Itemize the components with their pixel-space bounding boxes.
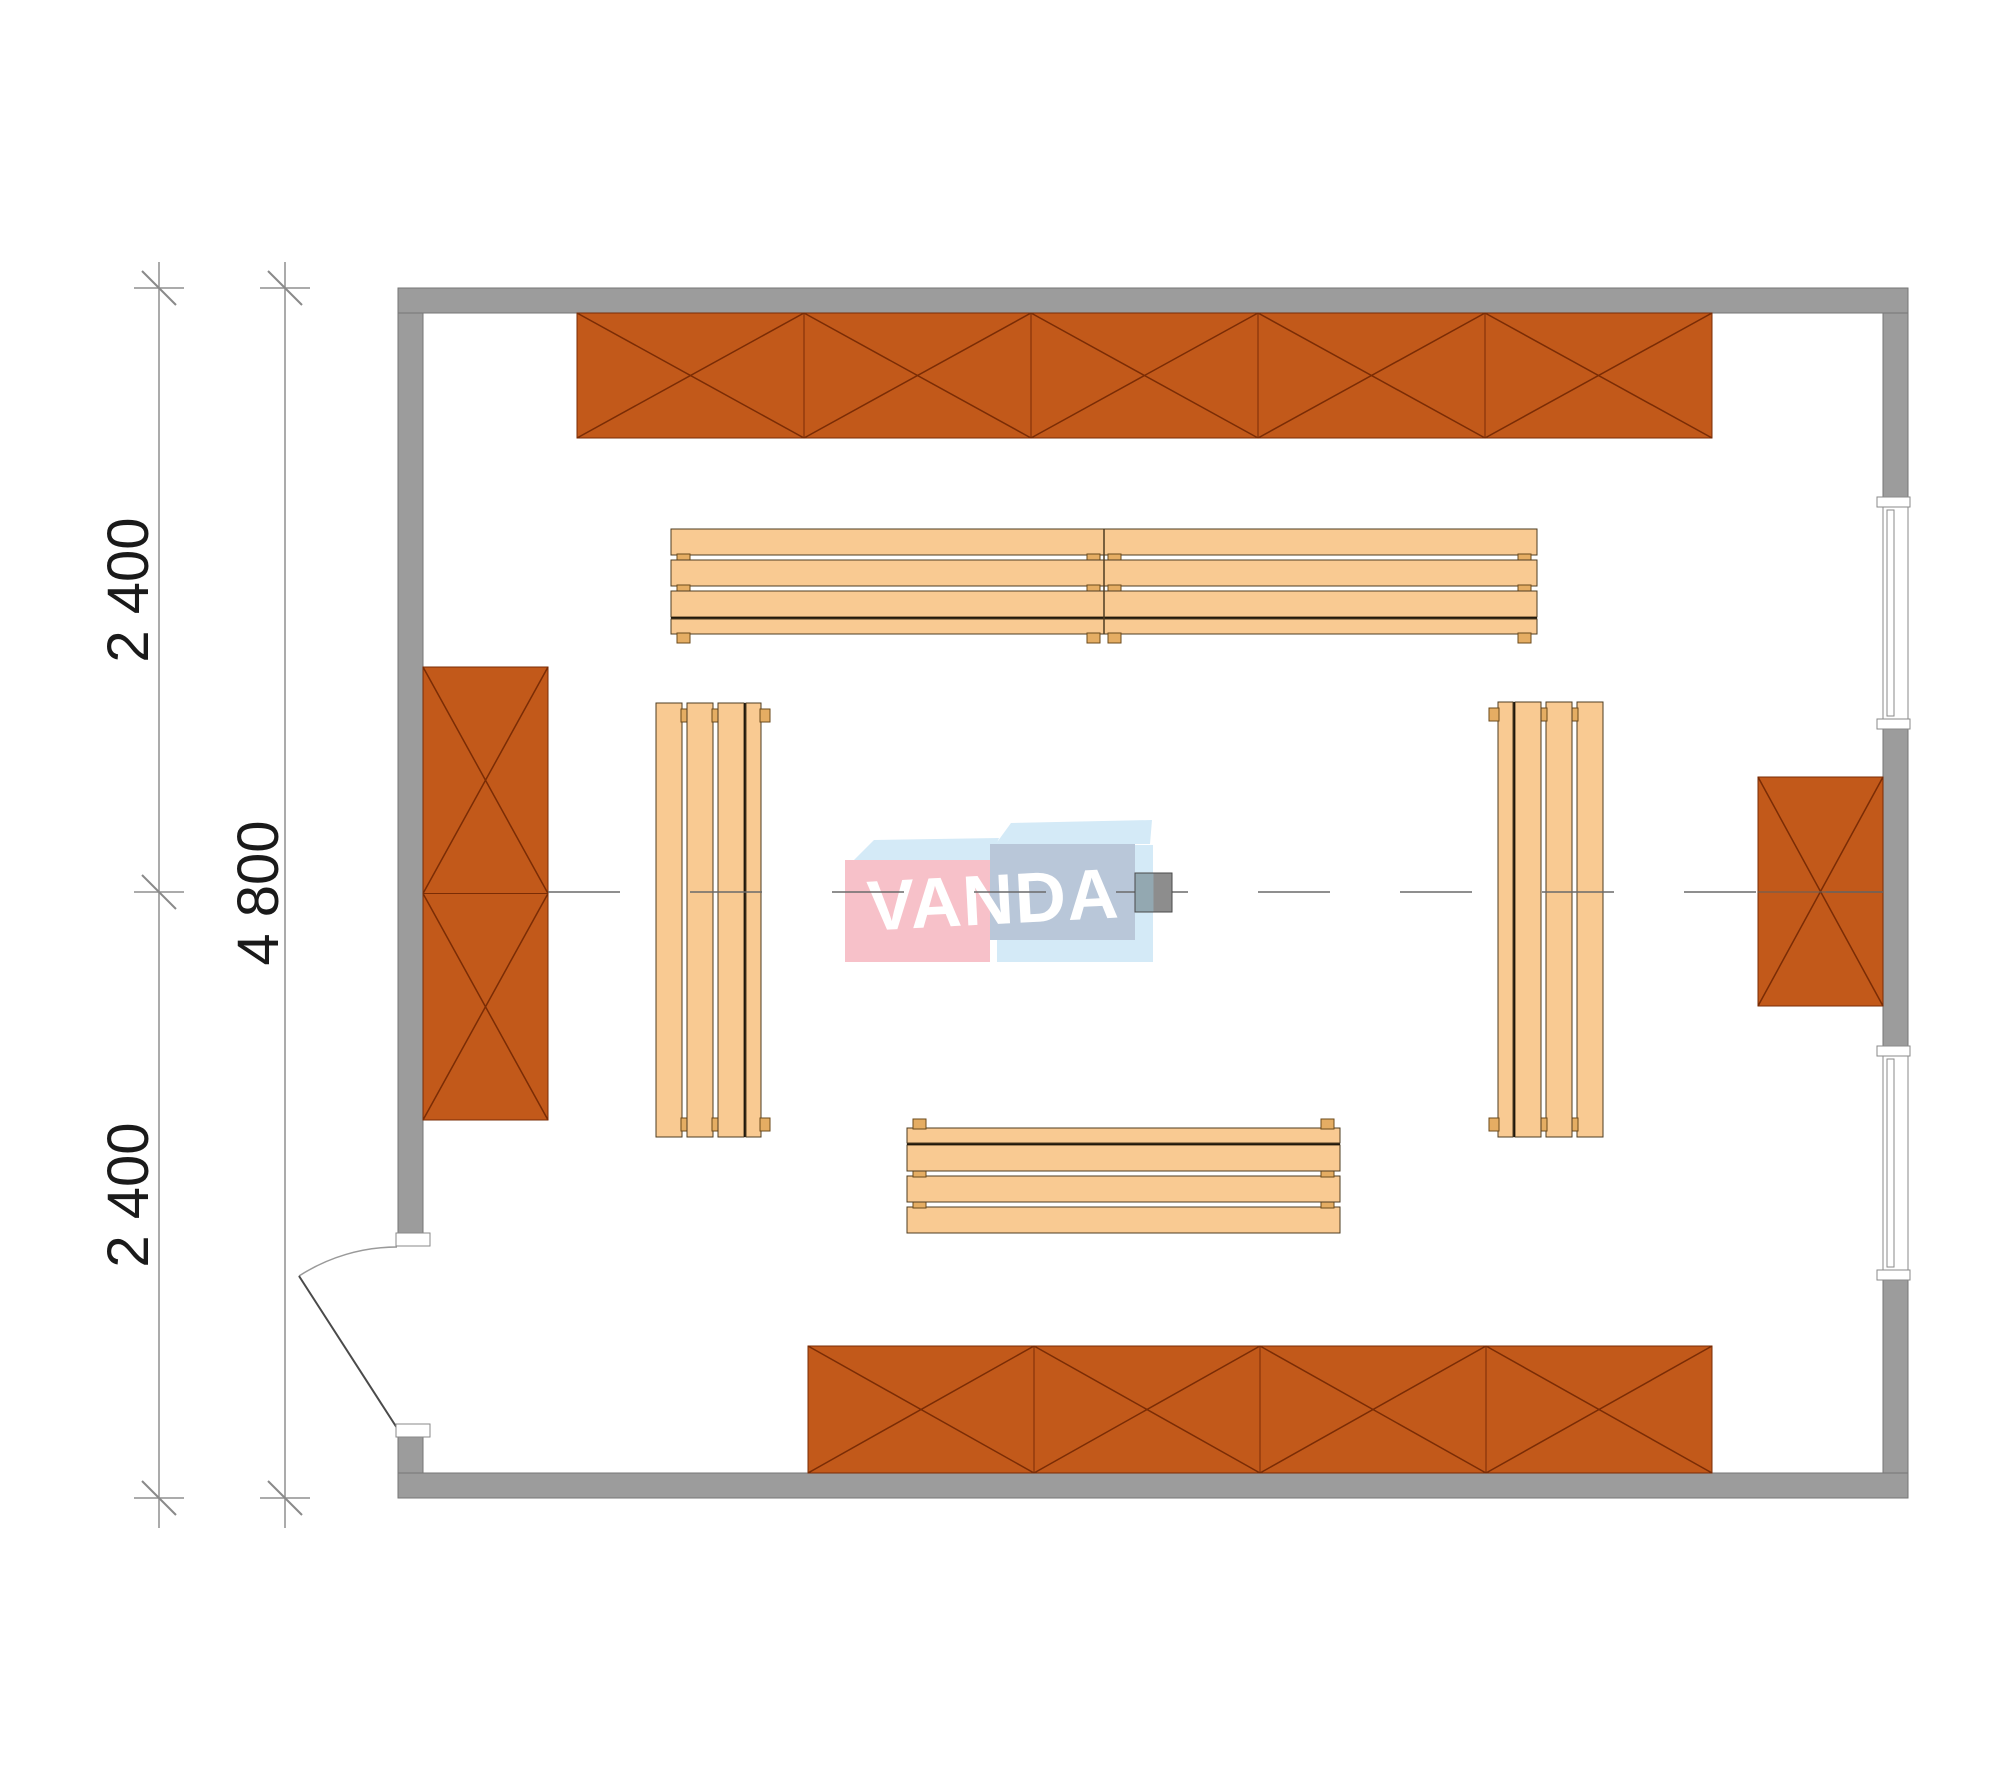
bench-leg [760, 1118, 770, 1131]
door-leaf [299, 1276, 397, 1428]
wall-right-upper [1883, 313, 1908, 500]
wall-right-mid [1883, 726, 1908, 1049]
bench-slat [687, 703, 713, 1137]
wall-top [398, 288, 1908, 313]
window-glazing [1887, 1059, 1894, 1267]
bench-slat [907, 1207, 1340, 1233]
bench-leg [1489, 1118, 1499, 1131]
bench-slat [907, 1128, 1340, 1143]
bench-leg [1321, 1119, 1334, 1129]
bench-slat [907, 1145, 1340, 1171]
bench-leg [677, 633, 690, 643]
stove-right-half [1154, 873, 1173, 912]
dimension-label-top-2400: 2 400 [96, 517, 161, 662]
bench-slat [1546, 702, 1572, 1137]
wall-bottom [398, 1473, 1908, 1498]
window-jamb-bottom [1877, 719, 1910, 729]
stove-left-half [1135, 873, 1154, 912]
window-right-upper [1877, 497, 1910, 729]
bench-slat [656, 703, 682, 1137]
bench-right [1489, 702, 1603, 1137]
bench-bottom [907, 1119, 1340, 1233]
wall-right-lower [1883, 1277, 1908, 1473]
watermark-flap-right [995, 820, 1152, 845]
cabinet-left-wall [423, 667, 548, 1120]
floor-plan-canvas: VANDA 2 400 2 400 4 800 [0, 0, 2000, 1786]
watermark-flap-left [853, 838, 999, 861]
bench-slat [1577, 702, 1603, 1137]
bench-slat [907, 1176, 1340, 1202]
door [299, 1233, 430, 1437]
bench-slat [1498, 702, 1513, 1137]
bench-leg [1489, 708, 1499, 721]
wall-left-upper [398, 313, 423, 1233]
window-jamb-bottom [1877, 1270, 1910, 1280]
bench-leg [1087, 633, 1100, 643]
bench-slat [746, 703, 761, 1137]
bench-leg [913, 1119, 926, 1129]
bench-slat [718, 703, 744, 1137]
bench-left [656, 703, 770, 1137]
window-jamb-top [1877, 497, 1910, 507]
door-jamb-top [396, 1233, 430, 1246]
door-jamb-bottom [396, 1424, 430, 1437]
cabinet-row-top [577, 313, 1712, 438]
bench-leg [1108, 633, 1121, 643]
window-right-lower [1877, 1046, 1910, 1280]
window-glazing [1887, 510, 1894, 716]
stove [1135, 873, 1172, 912]
bench-slat [1515, 702, 1541, 1137]
dimension-label-total-4800: 4 800 [226, 820, 291, 965]
bench-leg [760, 709, 770, 722]
wall-left-lower [398, 1437, 423, 1473]
watermark-logo-text: VANDA [865, 854, 1121, 946]
cabinet-row-bottom [808, 1346, 1712, 1473]
bench-leg [1518, 633, 1531, 643]
dimension-label-bottom-2400: 2 400 [96, 1122, 161, 1267]
window-jamb-top [1877, 1046, 1910, 1056]
door-swing-arc [299, 1247, 397, 1276]
bench-top [671, 529, 1537, 643]
floor-plan-page: VANDA 2 400 2 400 4 800 [0, 0, 2000, 1786]
